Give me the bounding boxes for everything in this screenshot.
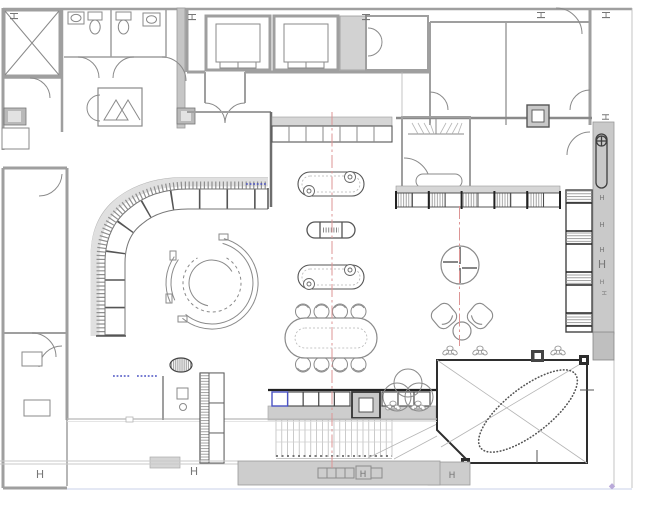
east-edge <box>566 122 614 360</box>
wall-column <box>22 352 42 366</box>
ac-unit <box>527 105 549 127</box>
armchair-right <box>465 301 496 332</box>
grid-marker-label: H <box>599 221 604 229</box>
grid-marker-label: H <box>190 465 198 478</box>
south-counter <box>268 390 437 459</box>
grid-marker-label: H <box>599 194 604 202</box>
grid-marker-label: H <box>449 471 456 481</box>
south-band <box>238 461 440 485</box>
wall-column <box>24 400 50 416</box>
grid-marker-label: H <box>359 13 372 21</box>
grid-marker-label: H <box>185 13 198 21</box>
toilet-room-1 <box>68 12 102 78</box>
fitting-room <box>402 72 470 188</box>
capsule-table-2 <box>307 222 355 238</box>
circular-lounge <box>166 234 258 329</box>
dotted-ellipse-feature <box>467 356 590 466</box>
east-shelf-band <box>396 186 560 209</box>
grid-marker-label: H <box>598 258 606 271</box>
grid-marker-label: H <box>534 11 547 19</box>
grid-marker-label: H <box>599 11 612 19</box>
service-core <box>2 8 195 149</box>
grid-marker-label: H <box>7 12 20 20</box>
janitor-room <box>87 88 142 126</box>
floor-plan-page: HHHHHHHHHHHHHHHH <box>0 0 650 508</box>
store-room <box>366 16 428 70</box>
conference-table <box>285 304 377 372</box>
hanger-icons <box>412 123 462 134</box>
vestibule-double-door <box>205 72 245 123</box>
highlighted-cell <box>272 392 288 406</box>
nested-square-unit <box>352 392 380 418</box>
toilet-room-2 <box>113 12 160 78</box>
grid-marker-label: H <box>360 470 367 480</box>
floor-plan-canvas: HHHHHHHHHHHHHHHH <box>0 0 650 508</box>
grid-marker-label: H <box>599 113 610 121</box>
capsule-table-1 <box>298 172 364 197</box>
plant-icon <box>472 346 488 356</box>
plant-icon <box>442 346 458 356</box>
hanging-display-lines <box>276 420 392 457</box>
striped-oval-column <box>170 358 192 372</box>
capsule-table-3 <box>298 265 364 290</box>
side-table <box>453 322 471 340</box>
grid-marker-label: H <box>600 279 605 286</box>
east-lounge <box>429 246 496 340</box>
grid-marker-label: H <box>36 468 44 481</box>
grid-marker-label: H <box>599 246 604 254</box>
grid-marker-label: H <box>600 291 607 296</box>
west-shelving <box>200 373 224 463</box>
east-shelving-column <box>566 190 592 332</box>
shaft-wall <box>340 16 366 70</box>
plant-icon <box>550 346 566 356</box>
armchair-left <box>429 301 460 332</box>
